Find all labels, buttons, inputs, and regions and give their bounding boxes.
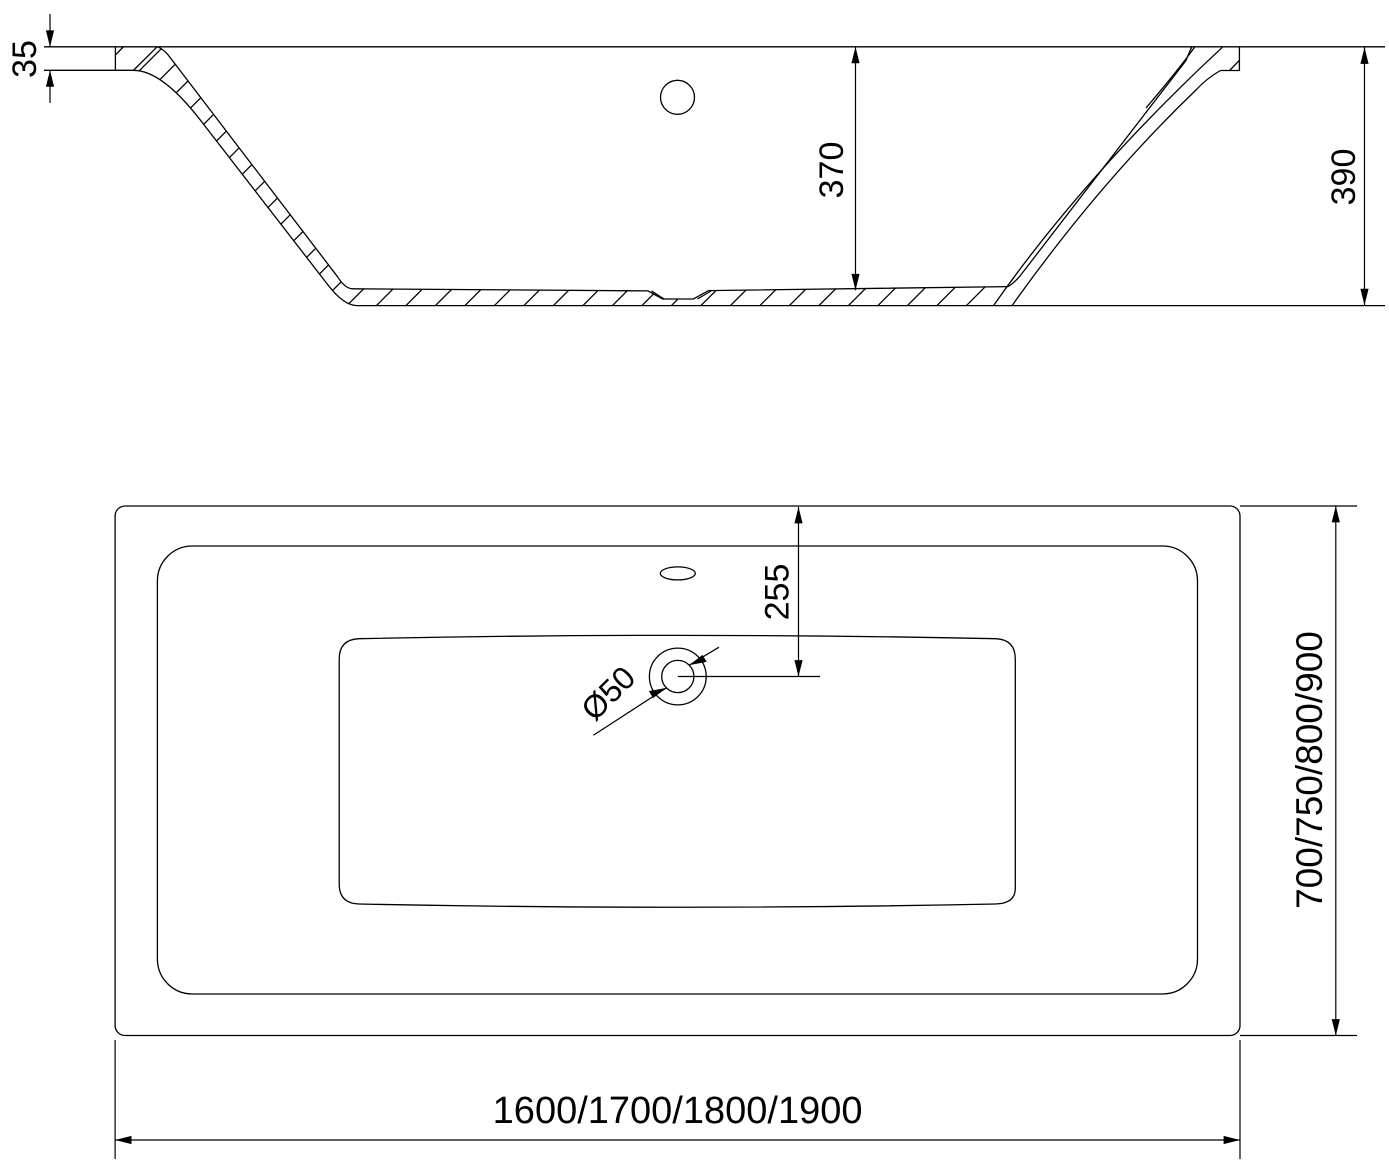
svg-text:35: 35 xyxy=(6,40,44,78)
svg-text:255: 255 xyxy=(759,564,797,621)
svg-text:390: 390 xyxy=(1325,149,1363,206)
svg-text:1600/1700/1800/1900: 1600/1700/1800/1900 xyxy=(493,1090,863,1132)
svg-text:700/750/800/900: 700/750/800/900 xyxy=(1289,631,1330,909)
svg-text:Ø50: Ø50 xyxy=(574,659,642,727)
svg-text:370: 370 xyxy=(813,142,851,199)
